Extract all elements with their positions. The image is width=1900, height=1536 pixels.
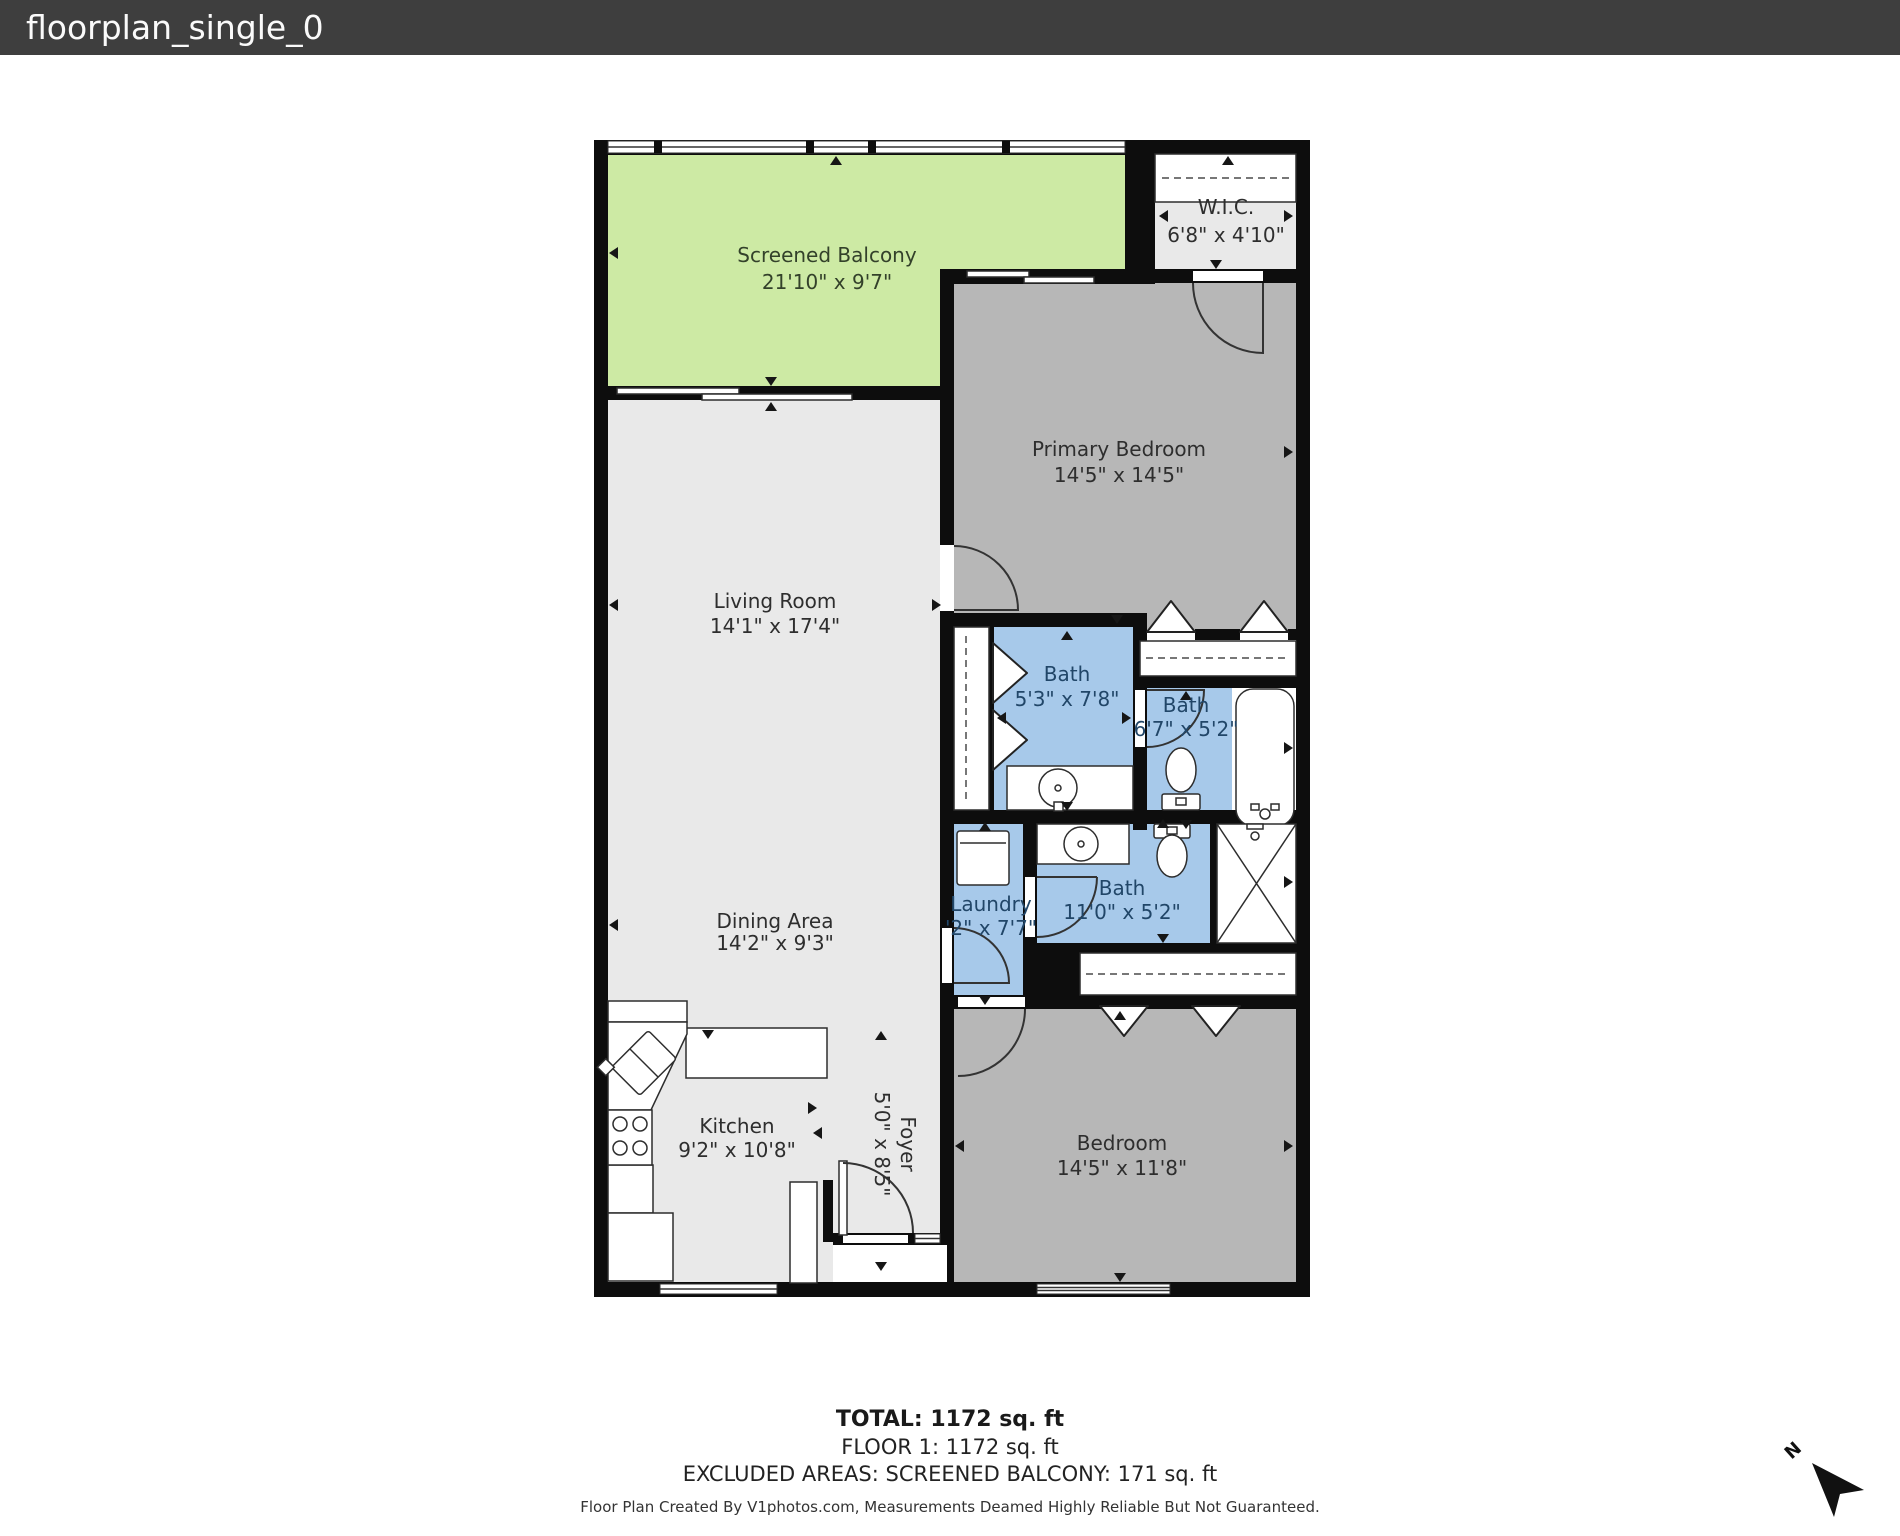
room-primary-bedroom-dims: 14'5" x 14'5" (1054, 463, 1184, 487)
area-summary: TOTAL: 1172 sq. ft FLOOR 1: 1172 sq. ft … (0, 1406, 1900, 1488)
window-titlebar: floorplan_single_0 (0, 0, 1900, 55)
entry-sidelight-window (915, 1234, 940, 1243)
room-living-name: Living Room (714, 589, 837, 613)
stove-icon (608, 1110, 652, 1165)
room-laundry-name: Laundry (950, 892, 1032, 916)
entry-recess (833, 1245, 947, 1282)
summary-total: TOTAL: 1172 sq. ft (0, 1406, 1900, 1434)
credit-line: Floor Plan Created By V1photos.com, Meas… (0, 1498, 1900, 1516)
room-bath3-dims: 11'0" x 5'2" (1063, 900, 1181, 924)
screen-window-band (608, 141, 1125, 153)
room-bedroom-name: Bedroom (1077, 1131, 1167, 1155)
bathtub-icon (1236, 689, 1294, 826)
window-title: floorplan_single_0 (26, 0, 324, 55)
room-primary-bedroom-name: Primary Bedroom (1032, 437, 1206, 461)
kitchen-window (660, 1284, 777, 1294)
room-living-dims: 14'1" x 17'4" (710, 614, 840, 638)
room-dining-dims: 14'2" x 9'3" (716, 931, 834, 955)
room-kitchen-name: Kitchen (699, 1114, 774, 1138)
room-dining-name: Dining Area (717, 909, 834, 933)
bath3-vanity-sink-icon (1037, 824, 1129, 864)
bath3-toilet-icon (1154, 824, 1190, 877)
room-bath1-name: Bath (1044, 662, 1091, 686)
room-foyer-dims: 5'0" x 8'5" (870, 1092, 894, 1197)
summary-floor1: FLOOR 1: 1172 sq. ft (0, 1434, 1900, 1461)
room-kitchen-dims: 9'2" x 10'8" (678, 1138, 796, 1162)
room-wic-dims: 6'8" x 4'10" (1167, 223, 1285, 247)
room-bath2-name: Bath (1163, 693, 1210, 717)
bedroom-window (1037, 1284, 1170, 1294)
floorplan-canvas: Screened Balcony 21'10" x 9'7" W.I.C. 6'… (0, 0, 1900, 1536)
room-laundry-dims: '2" x 7'7" (945, 916, 1037, 940)
washer-icon (957, 831, 1009, 885)
room-bath2-dims: 6'7" x 5'2" (1134, 717, 1239, 741)
room-bedroom-dims: 14'5" x 11'8" (1057, 1156, 1187, 1180)
room-wic-name: W.I.C. (1198, 195, 1254, 219)
room-balcony-name: Screened Balcony (737, 243, 917, 267)
room-bath1-dims: 5'3" x 7'8" (1015, 687, 1120, 711)
room-foyer-name: Foyer (896, 1116, 920, 1172)
summary-excluded: EXCLUDED AREAS: SCREENED BALCONY: 171 sq… (0, 1461, 1900, 1488)
screenshot-root: Screened Balcony 21'10" x 9'7" W.I.C. 6'… (0, 0, 1900, 1536)
room-bath3-name: Bath (1099, 876, 1146, 900)
room-balcony-dims: 21'10" x 9'7" (762, 270, 892, 294)
